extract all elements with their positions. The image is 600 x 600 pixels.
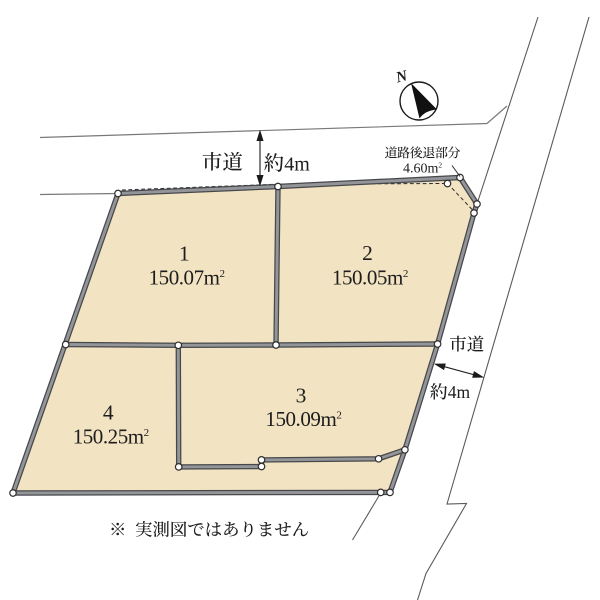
svg-text:4m: 4m	[448, 382, 471, 402]
svg-text:150.25m2: 150.25m2	[73, 425, 149, 449]
svg-text:150.09m2: 150.09m2	[265, 407, 341, 431]
svg-text:4m: 4m	[284, 153, 310, 175]
svg-text:4: 4	[103, 400, 114, 424]
svg-text:150.07m2: 150.07m2	[149, 266, 225, 290]
svg-text:3: 3	[296, 384, 307, 408]
svg-text:150.05m2: 150.05m2	[332, 266, 408, 290]
svg-text:1: 1	[179, 242, 190, 266]
svg-text:4.60m2: 4.60m2	[403, 161, 442, 177]
svg-text:2: 2	[362, 241, 373, 265]
